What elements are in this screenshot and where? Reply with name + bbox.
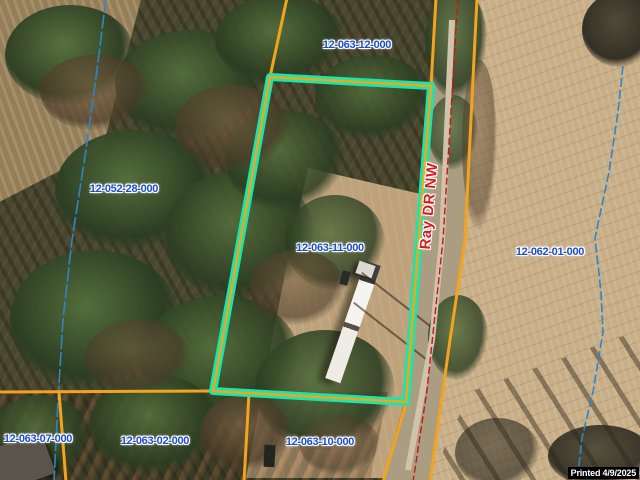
tree-canopy [315,55,430,140]
vehicle [263,445,275,468]
tree-canopy [175,85,290,170]
parcel-label-12-063-07-000: 12-063-07-000 [4,433,72,445]
tree-canopy [40,55,150,130]
tree-canopy [85,320,190,395]
tree-canopy [200,395,290,470]
tree-canopy [428,295,488,380]
map-canvas[interactable]: 12-063-12-000 12-052-28-000 12-063-11-00… [0,0,640,480]
tree-canopy [462,60,497,230]
parcel-label-12-063-11-000: 12-063-11-000 [296,242,364,254]
parcel-label-12-063-02-000: 12-063-02-000 [121,435,189,447]
parcel-label-12-063-10-000: 12-063-10-000 [286,436,354,448]
printed-date-stamp: Printed 4/9/2025 [568,467,639,479]
parcel-label-12-052-28-000: 12-052-28-000 [90,183,158,195]
parcel-label-12-062-01-000: 12-062-01-000 [516,246,584,258]
tree-canopy [250,250,345,325]
parcel-label-12-063-12-000: 12-063-12-000 [323,39,391,51]
